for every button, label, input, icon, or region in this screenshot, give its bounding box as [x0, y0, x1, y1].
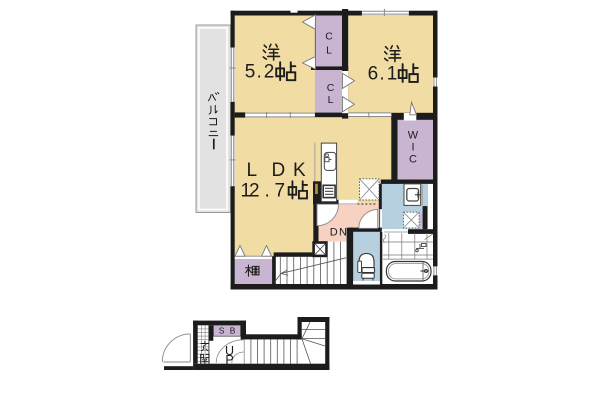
- svg-text:7: 7: [275, 181, 286, 202]
- svg-text:S: S: [219, 326, 225, 336]
- svg-text:L: L: [328, 94, 334, 106]
- svg-text:1: 1: [387, 64, 398, 85]
- svg-text:I: I: [411, 142, 414, 154]
- svg-text:2: 2: [249, 181, 260, 202]
- svg-text:.: .: [265, 181, 270, 202]
- svg-text:.: .: [379, 64, 384, 85]
- svg-text:6: 6: [368, 64, 379, 85]
- svg-text:L: L: [247, 160, 258, 181]
- svg-text:B: B: [230, 326, 236, 336]
- svg-text:C: C: [409, 154, 417, 166]
- svg-text:2: 2: [264, 62, 275, 83]
- svg-text:D: D: [272, 160, 286, 181]
- svg-text:W: W: [408, 130, 419, 142]
- svg-text:P: P: [225, 353, 233, 367]
- svg-text:C: C: [327, 82, 335, 94]
- svg-text:C: C: [325, 30, 333, 42]
- svg-text:.: .: [257, 62, 262, 83]
- svg-text:L: L: [326, 44, 332, 56]
- svg-text:K: K: [293, 160, 306, 181]
- svg-text:5: 5: [245, 62, 256, 83]
- svg-text:DN: DN: [330, 227, 349, 239]
